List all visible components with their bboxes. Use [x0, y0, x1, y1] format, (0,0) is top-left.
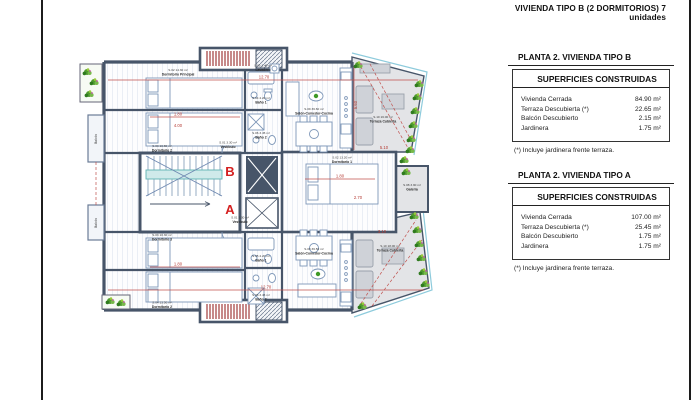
svg-text:Terraza Cubierta: Terraza Cubierta	[370, 120, 397, 124]
svg-text:Galería: Galería	[406, 188, 418, 192]
dim-text: 2.70	[354, 195, 363, 200]
dim-text: 1.80	[174, 112, 183, 117]
svg-text:S.06 3.45 m²: S.06 3.45 m²	[252, 293, 270, 297]
svg-text:Salón-Comedor-Cocina: Salón-Comedor-Cocina	[295, 252, 333, 256]
svg-text:S.02 13.20 m²: S.02 13.20 m²	[332, 156, 351, 160]
plant-pot-b	[314, 94, 318, 98]
drawing-sheet: VIVIENDA TIPO B (2 DORMITORIOS) 7 unidad…	[0, 0, 700, 400]
balcony-top-louvers	[207, 51, 249, 66]
balcony-bottom-louvers	[207, 304, 249, 319]
unit-b-letter: B	[225, 164, 234, 179]
dim-text: 5.10	[380, 145, 389, 150]
svg-text:S.03 10.80 m²: S.03 10.80 m²	[152, 144, 171, 148]
svg-text:S.06 3.45 m²: S.06 3.45 m²	[252, 131, 270, 135]
surface-row: Vivienda Cerrada107.00 m²	[521, 213, 661, 223]
svg-text:Terraza Cubierta: Terraza Cubierta	[377, 249, 404, 253]
dim-text: 4.00	[174, 123, 183, 128]
dim-text: 1.80	[336, 174, 345, 179]
svg-text:S.02 14.30 m²: S.02 14.30 m²	[168, 68, 187, 72]
svg-text:S.09 36.50 m²: S.09 36.50 m²	[304, 247, 323, 251]
svg-text:S.08 3.90 m²: S.08 3.90 m²	[403, 183, 421, 187]
surface-row: Vivienda Cerrada84.90 m²	[521, 95, 661, 105]
svg-text:S.03 10.30 m²: S.03 10.30 m²	[152, 233, 171, 237]
svg-text:S.05 4.20 m²: S.05 4.20 m²	[252, 254, 270, 258]
surface-row: Balcón Descubierto2.15 m²	[521, 114, 661, 124]
svg-text:Dormitorio 2: Dormitorio 2	[152, 149, 172, 153]
svg-text:Baño 1: Baño 1	[255, 258, 266, 262]
surface-row: Jardinera1.75 m²	[521, 124, 661, 134]
panel-a-footnote: (*) Incluye jardinera frente terraza.	[514, 265, 674, 272]
panel-b-heading: PLANTA 2. VIVIENDA TIPO B	[508, 52, 674, 66]
panel-a-subheading: SUPERFICIES CONSTRUIDAS	[513, 188, 669, 206]
dim-text: 12.70	[261, 285, 272, 290]
svg-text:Baño 1: Baño 1	[255, 100, 266, 104]
svg-text:Baño 2: Baño 2	[255, 135, 266, 139]
plant-pot-a	[316, 272, 320, 276]
svg-text:S.01 3.30 m²: S.01 3.30 m²	[219, 141, 237, 145]
panel-b-box: SUPERFICIES CONSTRUIDAS Vivienda Cerrada…	[512, 69, 670, 142]
svg-text:S.04 13.50 m²: S.04 13.50 m²	[152, 301, 171, 305]
panel-b-subheading: SUPERFICIES CONSTRUIDAS	[513, 70, 669, 88]
svg-text:Lavadero: Lavadero	[255, 68, 270, 72]
dim-text: 1.80	[174, 262, 183, 267]
svg-text:S.10 18.00 m²: S.10 18.00 m²	[380, 244, 399, 248]
dim-text: 12.70	[259, 75, 270, 80]
svg-text:Baño 2: Baño 2	[255, 297, 266, 301]
svg-text:S.04 4.20 m²: S.04 4.20 m²	[252, 96, 270, 100]
panel-a-heading: PLANTA 2. VIVIENDA TIPO A	[508, 170, 674, 184]
balcon-b-label: Balcón	[94, 134, 98, 144]
svg-text:Vestíbulo: Vestíbulo	[220, 145, 235, 149]
panel-vivienda-b: PLANTA 2. VIVIENDA TIPO B SUPERFICIES CO…	[508, 52, 674, 154]
svg-text:S.10 16.00 m²: S.10 16.00 m²	[373, 115, 392, 119]
balcon-a-label: Balcón	[94, 218, 98, 228]
svg-text:S.01 3.30 m²: S.01 3.30 m²	[231, 216, 249, 220]
dim-text: 5.60	[353, 100, 358, 109]
dim-text: 3.10	[378, 229, 387, 234]
svg-text:Dormitorio 3: Dormitorio 3	[152, 238, 172, 242]
surface-row: Balcón Descubierto1.75 m²	[521, 232, 661, 242]
surface-row: Jardinera1.75 m²	[521, 242, 661, 252]
svg-text:S.09 36.60 m²: S.09 36.60 m²	[304, 107, 323, 111]
panel-a-box: SUPERFICIES CONSTRUIDAS Vivienda Cerrada…	[512, 187, 670, 260]
svg-text:Dormitorio 2: Dormitorio 2	[152, 305, 172, 309]
surface-row: Terraza Descubierta (*)22.65 m²	[521, 105, 661, 115]
panel-vivienda-a: PLANTA 2. VIVIENDA TIPO A SUPERFICIES CO…	[508, 170, 674, 272]
surface-row: Terraza Descubierta (*)25.45 m²	[521, 223, 661, 233]
svg-text:Dormitorio 1: Dormitorio 1	[332, 160, 352, 164]
svg-text:Salón-Comedor-Cocina: Salón-Comedor-Cocina	[295, 112, 333, 116]
svg-text:Vestíbulo: Vestíbulo	[232, 220, 247, 224]
balcony-bottom-hatch	[256, 302, 282, 320]
panel-b-footnote: (*) Incluye jardinera frente terraza.	[514, 147, 674, 154]
stair-rail	[146, 170, 222, 179]
svg-text:Dormitorio Principal: Dormitorio Principal	[162, 73, 195, 77]
